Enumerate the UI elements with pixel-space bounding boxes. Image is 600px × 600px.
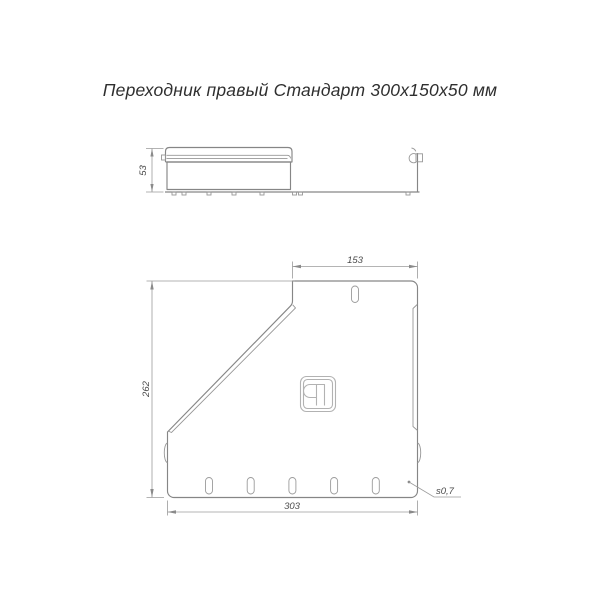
dim-plan-left-height-label: 262	[141, 380, 152, 398]
plan-view	[164, 281, 420, 498]
technical-drawing: 53	[0, 0, 600, 600]
side-view-rolled-edge	[166, 148, 293, 163]
dim-plan-bottom-width-label: 303	[284, 501, 301, 512]
dim-plan-top-width: 153	[293, 255, 418, 279]
side-view-body	[167, 162, 291, 190]
dim-side-height: 53	[138, 149, 164, 193]
side-view-left-tab	[162, 155, 166, 160]
plan-diagonal-bend-line	[168, 305, 296, 433]
mounting-slot-top	[352, 286, 359, 303]
thickness-note-label: s0,7	[436, 486, 455, 497]
plan-right-bend-line	[413, 305, 418, 431]
mounting-slots-bottom	[206, 478, 380, 495]
dim-plan-left-height: 262	[141, 281, 295, 498]
dim-side-height-label: 53	[138, 165, 149, 176]
side-view-lip-curl	[412, 148, 416, 151]
side-view	[162, 148, 423, 196]
dim-plan-top-width-label: 153	[347, 255, 364, 266]
manufacturer-monogram-icon	[301, 377, 336, 412]
dim-plan-bottom-width: 303	[168, 501, 418, 516]
plan-outline	[168, 281, 418, 498]
drawing-sheet: Переходник правый Стандарт 300х150х50 мм	[0, 0, 600, 600]
side-view-roll-line-1	[167, 155, 291, 158]
side-view-lip-arc	[409, 154, 416, 163]
thickness-note: s0,7	[408, 481, 461, 497]
